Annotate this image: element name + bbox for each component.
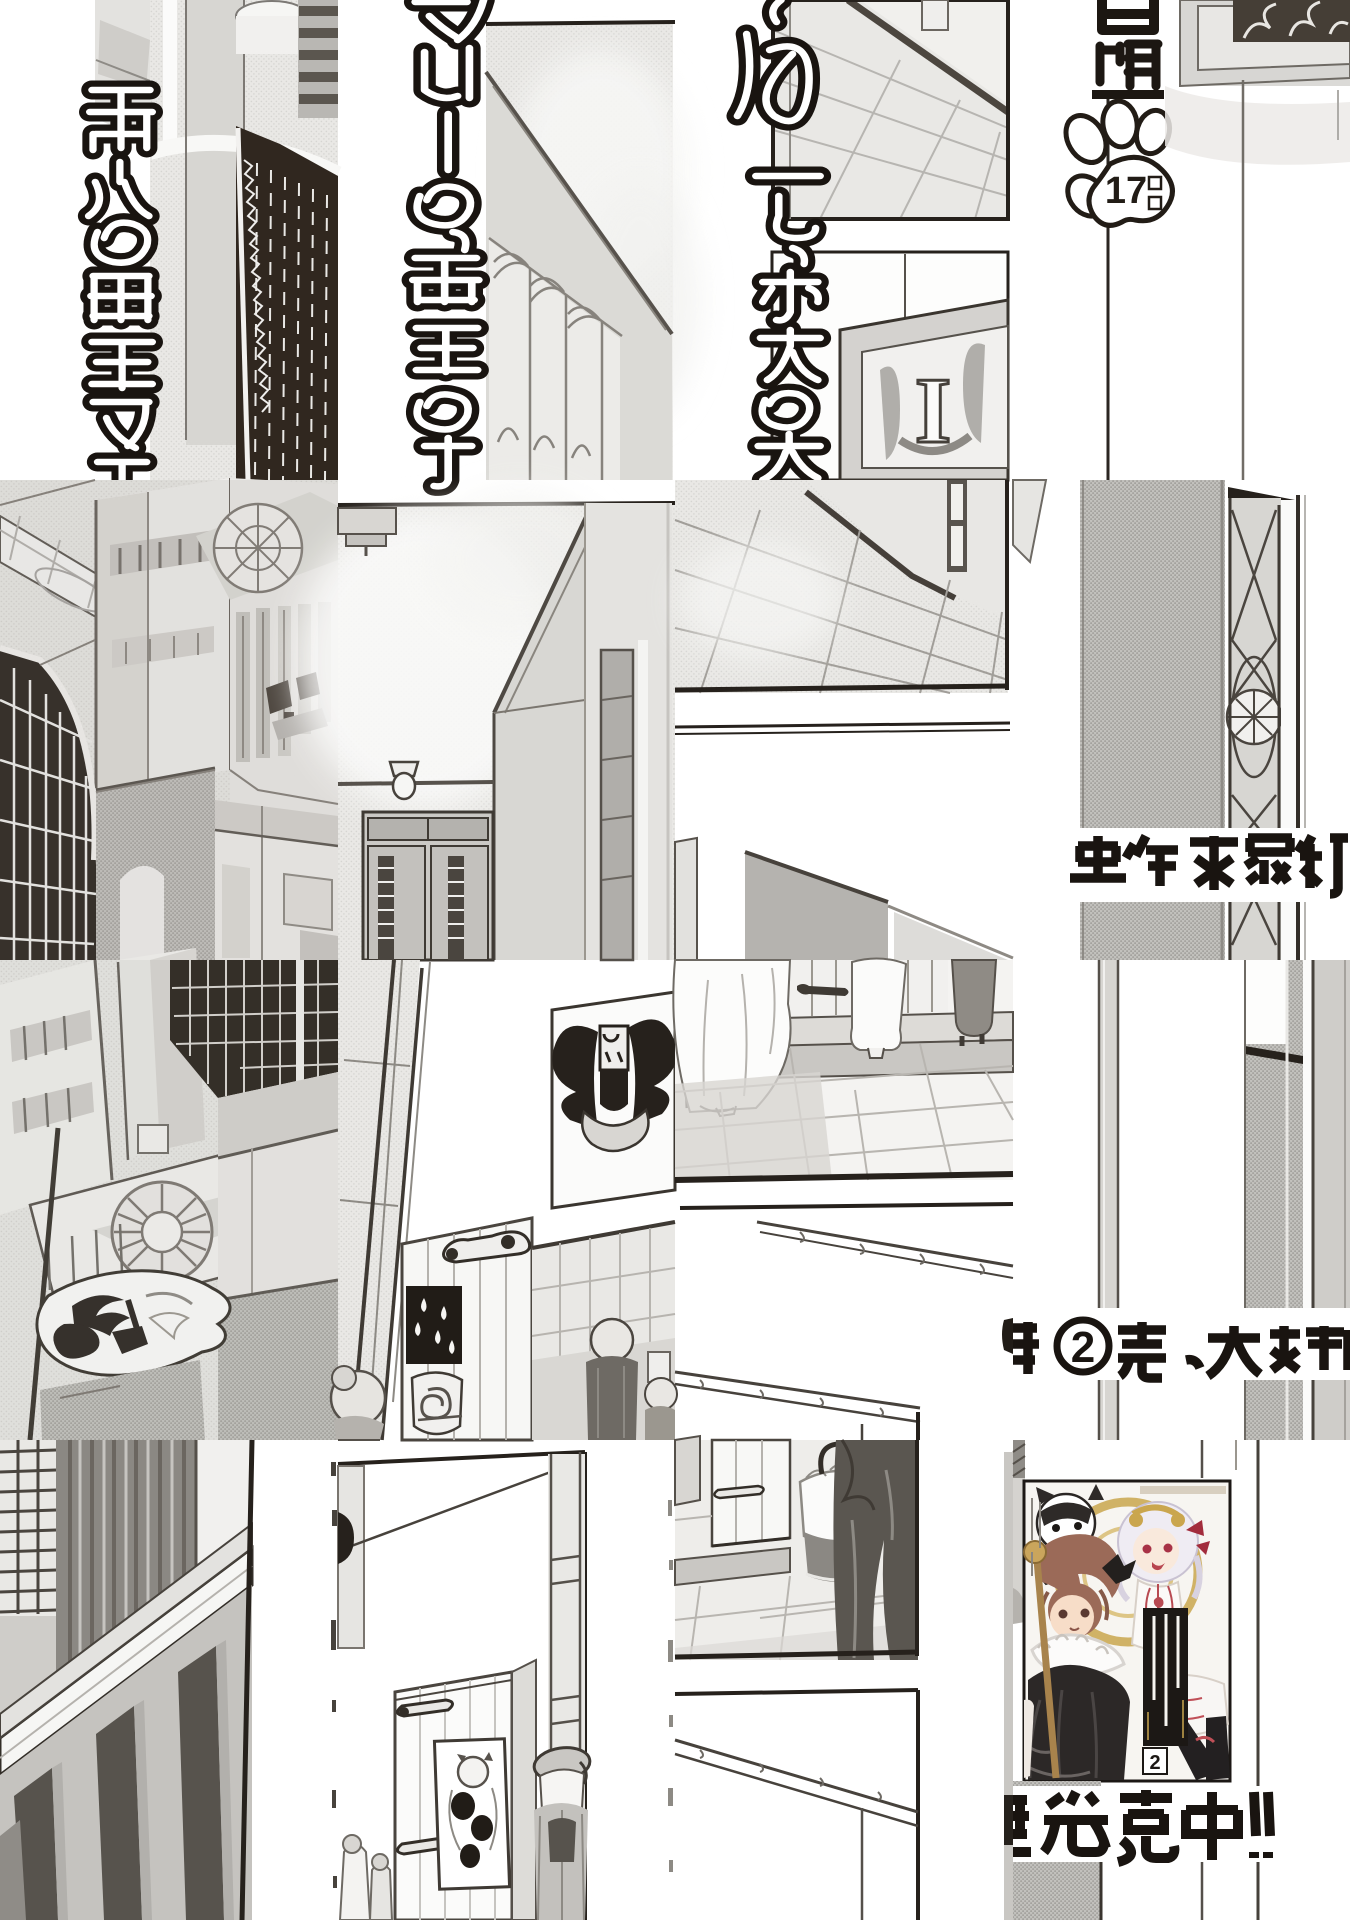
svg-text:I: I xyxy=(915,359,952,463)
svg-text:17: 17 xyxy=(1105,170,1147,212)
svg-text:2: 2 xyxy=(1071,1323,1095,1372)
svg-text:2: 2 xyxy=(1149,1752,1160,1774)
